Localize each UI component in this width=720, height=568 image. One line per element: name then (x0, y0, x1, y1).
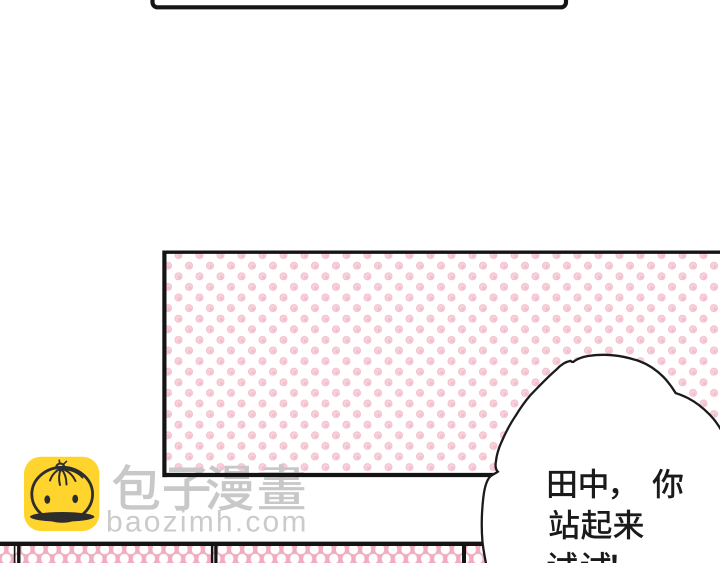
svg-text:baozimh.com: baozimh.com (106, 506, 309, 539)
